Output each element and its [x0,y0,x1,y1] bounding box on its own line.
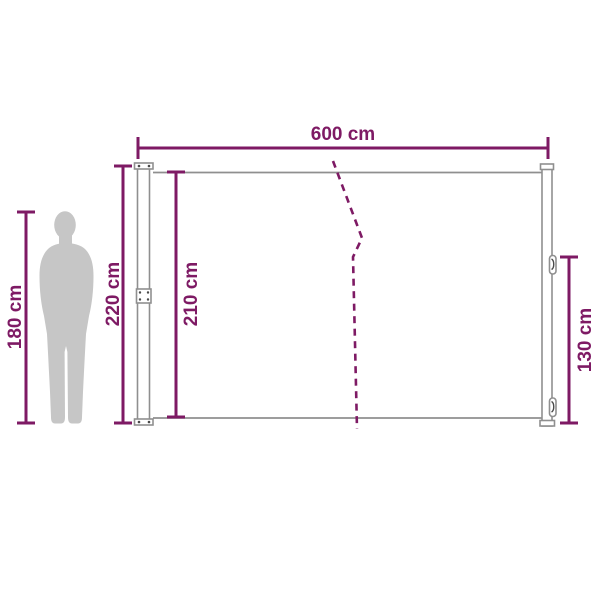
dimension-handle-height: 130 cm [560,257,596,423]
dimension-post-height: 220 cm [103,166,132,423]
person-body [40,243,94,424]
person-silhouette-icon [40,211,94,423]
front-bar-body [542,167,552,426]
post-bottom-screw-right [148,421,151,424]
awning-post-left [135,163,154,425]
post-top-screw-right [148,165,151,168]
dimension-label-handle-height: 130 cm [575,308,596,372]
handle-hook-top [550,256,557,275]
dimension-label-post-height: 220 cm [103,262,124,326]
dimension-label-width: 600 cm [311,124,375,145]
bracket-screw [147,291,149,293]
product-dimension-diagram: 600 cm 220 cm 210 cm 180 cm [0,0,600,600]
bracket-screw [147,298,149,300]
dimension-fabric-height: 210 cm [167,172,202,417]
dimension-person-height: 180 cm [5,212,35,423]
front-bar-top-cap [541,164,554,170]
post-top-screw-left [138,165,141,168]
awning-front-bar [540,164,556,426]
handle-hook-bottom [550,398,557,417]
bracket-screw [139,291,141,293]
dimension-width: 600 cm [138,124,548,159]
front-bar-bottom-cap [540,421,555,427]
dimension-diagram-canvas: 600 cm 220 cm 210 cm 180 cm [0,0,600,600]
dimension-label-person-height: 180 cm [5,285,26,349]
seam-dashed-line [333,161,362,429]
post-bottom-screw-left [138,421,141,424]
dimension-label-fabric-height: 210 cm [181,262,202,326]
wall-bracket [137,289,152,303]
bracket-screw [139,298,141,300]
